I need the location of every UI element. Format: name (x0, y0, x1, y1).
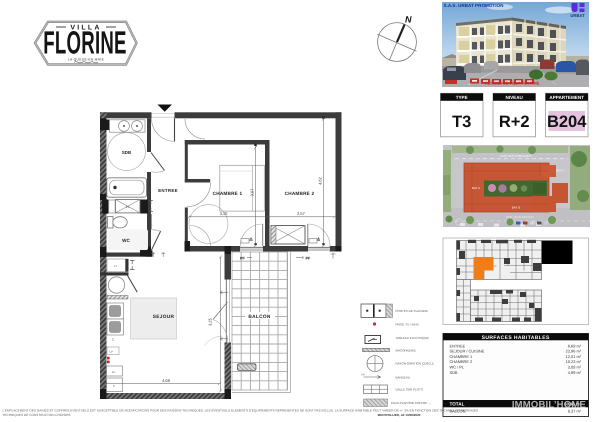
svg-text:B204: B204 (547, 113, 587, 131)
svg-text:ENTREE: ENTREE (158, 188, 178, 193)
svg-text:CHAMBRE 1: CHAMBRE 1 (450, 354, 473, 359)
svg-text:RUE DES FONTAINES: RUE DES FONTAINES (500, 154, 531, 158)
svg-text:DALLE SUR PLOTS: DALLE SUR PLOTS (396, 387, 423, 391)
svg-text:12,01 m²: 12,01 m² (566, 354, 582, 359)
svg-text:BAT A: BAT A (472, 186, 480, 190)
svg-text:PRISE TV / RJ45: PRISE TV / RJ45 (396, 323, 419, 327)
svg-text:BALCON: BALCON (248, 314, 271, 320)
svg-text:LA QUEUE-EN-BRIE: LA QUEUE-EN-BRIE (68, 58, 104, 62)
svg-text:T3: T3 (452, 113, 471, 131)
svg-text:SEJOUR / CUISINE: SEJOUR / CUISINE (450, 349, 485, 354)
svg-text:APPARTEMENT: APPARTEMENT (549, 95, 584, 100)
svg-text:S.A.S. URBAT PROMOTION: S.A.S. URBAT PROMOTION (444, 3, 505, 8)
svg-text:C: C (112, 338, 115, 342)
svg-text:WC: WC (122, 238, 130, 243)
svg-text:VR: VR (361, 374, 365, 377)
svg-text:WC / PL: WC / PL (450, 365, 465, 370)
svg-text:TOTAL: TOTAL (450, 402, 465, 407)
svg-text:PL: PL (126, 205, 130, 209)
svg-text:3,10: 3,10 (220, 211, 229, 216)
svg-text:ENTREE: ENTREE (450, 343, 466, 348)
svg-text:CHAMBRE 2: CHAMBRE 2 (285, 191, 315, 196)
svg-text:NIVEAU: NIVEAU (506, 95, 524, 100)
svg-text:SURFACES HABITABLES: SURFACES HABITABLES (482, 335, 550, 341)
svg-text:3,67: 3,67 (250, 188, 255, 197)
svg-text:FAUX-PLAFOND COFFRE ...: FAUX-PLAFOND COFFRE ... (391, 401, 431, 405)
svg-text:BAT B: BAT B (512, 206, 520, 210)
svg-text:N: N (405, 15, 412, 25)
svg-text:4,99 m²: 4,99 m² (568, 370, 582, 375)
svg-text:CHAMBRE 2: CHAMBRE 2 (450, 359, 473, 364)
svg-text:LT: LT (114, 264, 117, 268)
svg-text:TECHNIQUES DE CONSTRUCTION CHO: TECHNIQUES DE CONSTRUCTION CHOISIES. (3, 413, 72, 417)
svg-text:F: F (113, 384, 115, 388)
svg-text:3,08 m²: 3,08 m² (568, 365, 582, 370)
svg-text:FLORINE: FLORINE (43, 26, 126, 61)
svg-text:23,96 m²: 23,96 m² (566, 349, 582, 354)
svg-text:BANDEAU: BANDEAU (396, 375, 411, 379)
svg-text:4,62: 4,62 (318, 176, 323, 185)
svg-text:L’EMPLACEMENT DES GAINES ET CO: L’EMPLACEMENT DES GAINES ET COFFRES EVEN… (3, 408, 479, 412)
svg-text:PORTES DE PLACARD: PORTES DE PLACARD (396, 309, 429, 313)
svg-text:RUE JEAN MOULIN: RUE JEAN MOULIN (506, 215, 533, 219)
svg-text:PF: PF (240, 257, 246, 261)
svg-text:2,57: 2,57 (297, 211, 306, 216)
svg-text:RESIDENCE VILLA FLORINE: RESIDENCE VILLA FLORINE (485, 80, 540, 85)
svg-text:IMMOBIL’HOME: IMMOBIL’HOME (512, 400, 586, 411)
svg-text:10,23 m²: 10,23 m² (566, 359, 582, 364)
svg-text:6,69 m²: 6,69 m² (568, 343, 582, 348)
svg-text:4,68: 4,68 (162, 378, 171, 383)
svg-text:LV: LV (110, 350, 113, 354)
svg-text:TYPE: TYPE (456, 95, 468, 100)
svg-text:CHAMBRE 1: CHAMBRE 1 (213, 191, 243, 196)
svg-text:SDB: SDB (450, 370, 458, 375)
svg-text:MACONNERIE: MACONNERIE (396, 348, 416, 352)
svg-text:RAYON GIRATION CERCLE: RAYON GIRATION CERCLE (396, 362, 435, 366)
svg-text:BAT C: BAT C (556, 169, 565, 173)
svg-text:3,25: 3,25 (208, 317, 213, 326)
svg-text:SEJOUR: SEJOUR (153, 314, 175, 320)
svg-text:PF: PF (306, 257, 312, 261)
svg-text:R+2: R+2 (499, 113, 530, 131)
svg-text:TABLEAU ELECTRIQUE: TABLEAU ELECTRIQUE (396, 336, 429, 340)
svg-text:URBAT: URBAT (570, 13, 585, 18)
svg-text:LL: LL (112, 370, 116, 374)
svg-text:SDB: SDB (122, 150, 131, 155)
svg-text:MONTPELLIER, LE 10/06/2020: MONTPELLIER, LE 10/06/2020 (378, 413, 421, 417)
